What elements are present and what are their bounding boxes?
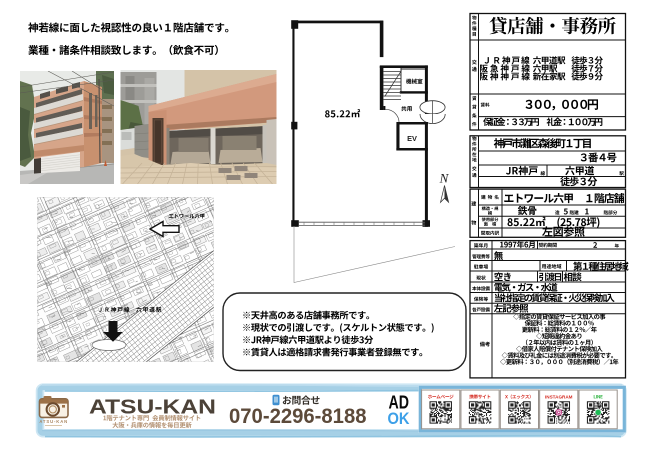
- svg-text:070-2296-8188: 070-2296-8188: [229, 404, 367, 428]
- svg-text:ATSU-KAN: ATSU-KAN: [39, 419, 68, 424]
- svg-text:N: N: [439, 171, 450, 186]
- svg-text:OK: OK: [388, 409, 411, 428]
- svg-text:INSTAGRAM: INSTAGRAM: [545, 394, 573, 399]
- svg-text:ATSU-KAN: ATSU-KAN: [89, 397, 216, 419]
- svg-text:EV: EV: [407, 134, 417, 143]
